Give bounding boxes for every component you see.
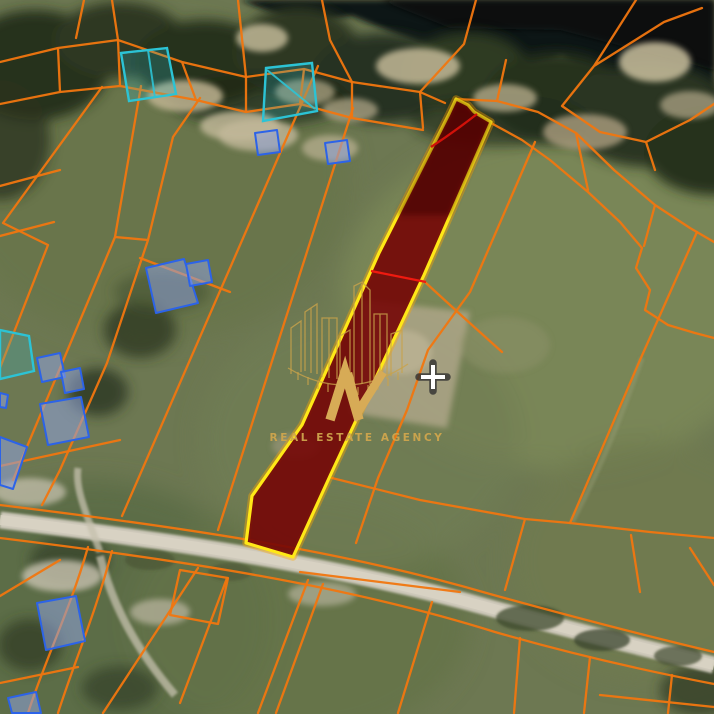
roadside-tree [574, 629, 630, 651]
map-viewport[interactable]: REAL ESTATE AGENCY [0, 0, 714, 714]
roadside-tree [654, 646, 702, 666]
sand-blob [376, 48, 460, 84]
building-footprint-overlay[interactable] [255, 130, 280, 155]
building-footprint-overlay[interactable] [0, 393, 8, 408]
building-footprint-overlay[interactable] [37, 353, 65, 382]
sand-blob [619, 42, 691, 82]
building-footprint-overlay[interactable] [37, 596, 85, 650]
building-footprint-overlay[interactable] [40, 397, 89, 445]
building-footprint-overlay[interactable] [325, 140, 350, 164]
building-footprint-overlay[interactable] [61, 368, 84, 393]
highlight-zone[interactable] [263, 63, 317, 121]
farmyard-patch [130, 599, 190, 625]
highlight-zone[interactable] [0, 330, 34, 379]
roadside-tree [496, 605, 564, 631]
roadside-tree [208, 563, 252, 581]
sand-blob [543, 114, 627, 150]
sand-blob [473, 84, 537, 112]
building-footprint-overlay[interactable] [186, 260, 212, 286]
agency-name-text: REAL ESTATE AGENCY [270, 432, 445, 444]
